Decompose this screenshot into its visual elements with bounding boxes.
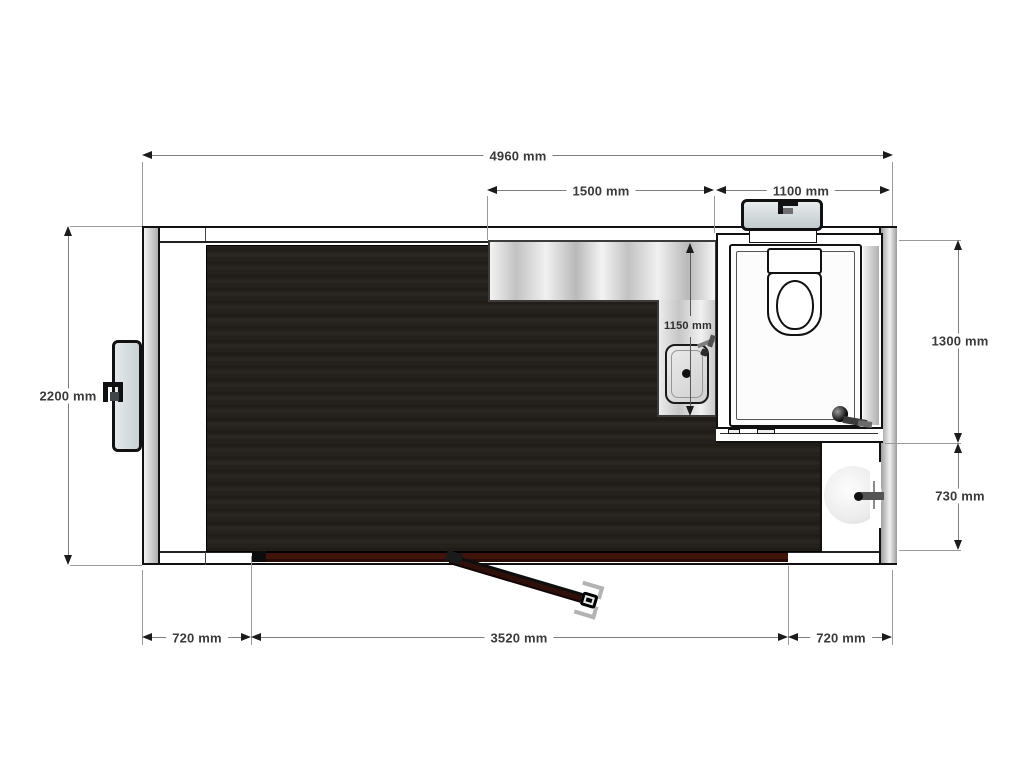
ext-1500-right — [714, 196, 715, 233]
entry-strip-tick-bottom — [205, 552, 206, 565]
dim-3520-label: 3520 mm — [484, 631, 553, 646]
entry-strip-tick-top — [205, 228, 206, 241]
top-hatch-handle-shade — [783, 208, 793, 214]
ext-2200-bottom — [70, 565, 142, 566]
ext-bottom-4 — [892, 570, 893, 645]
ext-total-left — [142, 162, 143, 226]
ext-total-right — [892, 162, 893, 226]
dim-720L-label: 720 mm — [166, 631, 228, 646]
dim-1100-arrow-left — [716, 186, 726, 194]
ext-730-bottom — [899, 550, 961, 551]
dim-1300-label: 1300 mm — [925, 334, 994, 349]
dim-total-label: 4960 mm — [483, 149, 552, 164]
door-roller-2 — [757, 429, 775, 434]
dim-3520-arrow-left — [251, 633, 261, 641]
dim-1150-arrow-bottom — [686, 406, 694, 416]
dim-1150-line-top — [690, 252, 691, 316]
front-door-bar — [252, 551, 788, 562]
toilet-door-track — [716, 427, 883, 441]
dim-730-arrow-bottom — [954, 540, 962, 550]
dim-720R-label: 720 mm — [810, 631, 872, 646]
ext-shared-middle — [885, 443, 961, 444]
toilet-room-right-wall — [863, 246, 879, 425]
left-wall — [144, 228, 160, 563]
basin-drain — [854, 492, 863, 501]
ext-1300-top — [899, 240, 961, 241]
front-door-bar-cap — [252, 551, 266, 562]
ext-bottom-2 — [251, 556, 252, 645]
dim-1500-label: 1500 mm — [566, 184, 635, 199]
dim-1150-line-bottom — [690, 337, 691, 407]
dim-1100-arrow-right — [880, 186, 890, 194]
dim-1300-arrow-bottom — [954, 433, 962, 443]
dim-730-arrow-top — [954, 443, 962, 453]
dim-3520-arrow-right — [778, 633, 788, 641]
left-hatch-handle-shade — [110, 392, 119, 401]
dim-720L-arrow-right — [241, 633, 251, 641]
dim-720L-arrow-left — [142, 633, 152, 641]
counter — [488, 240, 717, 302]
dim-1500-arrow-left — [487, 186, 497, 194]
door-roller-1 — [728, 429, 740, 434]
dim-2200-label: 2200 mm — [33, 389, 102, 404]
dim-1100-label: 1100 mm — [767, 184, 835, 199]
dim-720R-arrow-right — [882, 633, 892, 641]
dim-1300-arrow-top — [954, 240, 962, 250]
dim-total-arrow-left — [142, 151, 152, 159]
toilet-door-track-line — [720, 433, 878, 434]
dim-1150-arrow-top — [686, 243, 694, 253]
ext-1500-left — [487, 196, 488, 240]
toilet-bowl — [776, 280, 814, 330]
dim-720R-arrow-left — [788, 633, 798, 641]
dim-1500-arrow-right — [704, 186, 714, 194]
toilet-tank — [767, 248, 822, 274]
floor-plan-canvas: 4960 mm 1500 mm 1100 mm 2200 mm 1300 mm … — [0, 0, 1024, 768]
ext-2200-top — [70, 226, 142, 227]
basin-room-wall — [820, 443, 822, 552]
dim-total-arrow-right — [883, 151, 893, 159]
dim-1150-label: 1150 mm — [664, 320, 712, 332]
dim-2200-arrow-bottom — [64, 555, 72, 565]
dim-2200-arrow-top — [64, 226, 72, 236]
dim-730-label: 730 mm — [929, 489, 991, 504]
